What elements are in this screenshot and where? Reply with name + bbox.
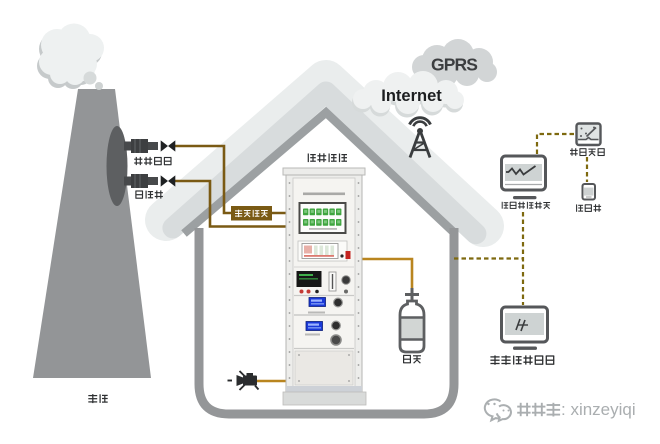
svg-text:Internet: Internet [381, 87, 442, 105]
svg-text:: xinzeyiqi: : xinzeyiqi [561, 400, 636, 419]
svg-text:GPRS: GPRS [431, 55, 477, 75]
